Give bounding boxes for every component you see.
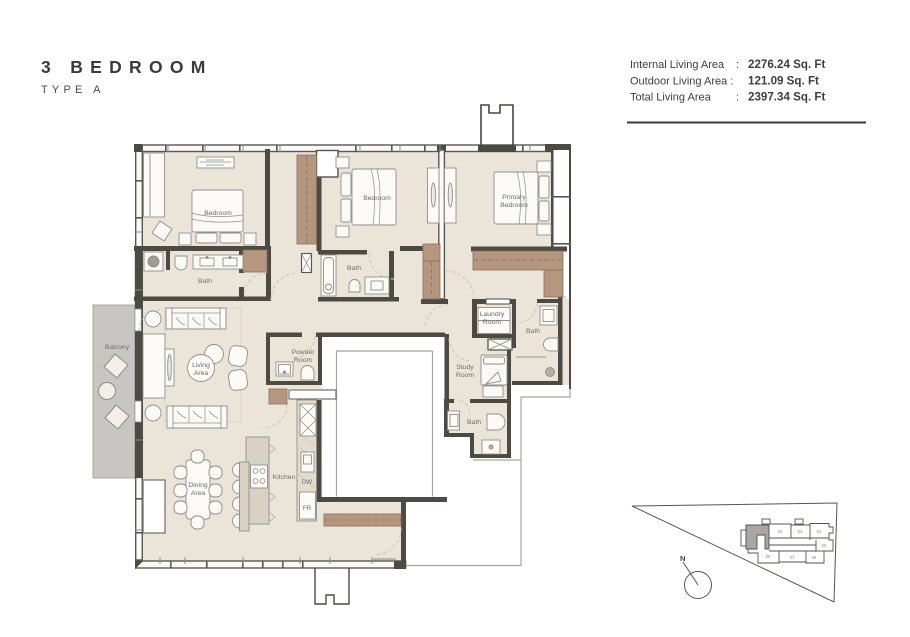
svg-text:FR: FR <box>303 505 312 512</box>
svg-text:Kitchen: Kitchen <box>273 474 296 481</box>
svg-text:DW: DW <box>302 479 312 486</box>
svg-text:Dining: Dining <box>188 482 207 489</box>
svg-text:Bath: Bath <box>467 419 481 426</box>
svg-text:Laundry: Laundry <box>480 311 505 318</box>
svg-text:TYPE A: TYPE A <box>41 84 105 96</box>
svg-text:Bath: Bath <box>526 328 540 335</box>
svg-text:N: N <box>680 554 685 563</box>
svg-text:2397.34 Sq. Ft: 2397.34 Sq. Ft <box>748 91 825 104</box>
svg-text:Total Living Area: Total Living Area <box>630 92 712 104</box>
svg-text:03: 03 <box>798 529 803 534</box>
svg-text:121.09 Sq. Ft: 121.09 Sq. Ft <box>748 75 819 88</box>
svg-text:Bedroom: Bedroom <box>500 202 528 209</box>
svg-text:Area: Area <box>194 370 209 377</box>
svg-text:Area: Area <box>191 490 206 497</box>
svg-text:06: 06 <box>812 555 817 560</box>
svg-text:Outdoor Living Area :: Outdoor Living Area : <box>630 76 733 88</box>
svg-text:Bedroom: Bedroom <box>204 210 232 217</box>
svg-text:Room: Room <box>483 319 501 326</box>
svg-text:Powder: Powder <box>291 349 315 356</box>
svg-text::: : <box>736 59 739 71</box>
svg-text:07: 07 <box>790 555 795 560</box>
svg-text:Balcony: Balcony <box>105 344 130 351</box>
svg-text::: : <box>736 92 739 104</box>
svg-text:Living: Living <box>192 362 210 369</box>
svg-text:Bedroom: Bedroom <box>363 195 391 202</box>
svg-text:08: 08 <box>766 554 771 559</box>
svg-text:2276.24 Sq. Ft: 2276.24 Sq. Ft <box>748 58 825 71</box>
svg-text:02: 02 <box>778 529 783 534</box>
svg-text:Study: Study <box>456 364 474 371</box>
svg-text:3 BEDROOM: 3 BEDROOM <box>41 57 213 77</box>
svg-text:Room: Room <box>456 372 474 379</box>
svg-text:Bath: Bath <box>198 278 212 285</box>
svg-text:Internal Living Area: Internal Living Area <box>630 59 725 71</box>
svg-text:Bath: Bath <box>347 265 361 272</box>
svg-text:05: 05 <box>822 543 827 548</box>
svg-text:Primary: Primary <box>502 194 526 201</box>
svg-text:Room: Room <box>294 357 312 364</box>
svg-text:04: 04 <box>817 529 822 534</box>
